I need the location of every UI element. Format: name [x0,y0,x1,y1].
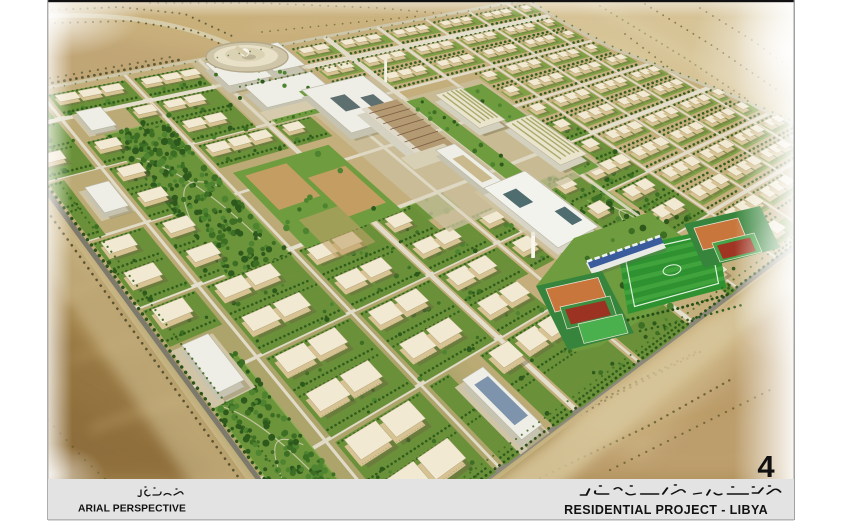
svg-text:4: 4 [757,449,775,484]
svg-text:RESIDENTIAL PROJECT - LIBYA: RESIDENTIAL PROJECT - LIBYA [564,503,768,517]
svg-text:ARIAL PERSPECTIVE: ARIAL PERSPECTIVE [78,504,186,515]
